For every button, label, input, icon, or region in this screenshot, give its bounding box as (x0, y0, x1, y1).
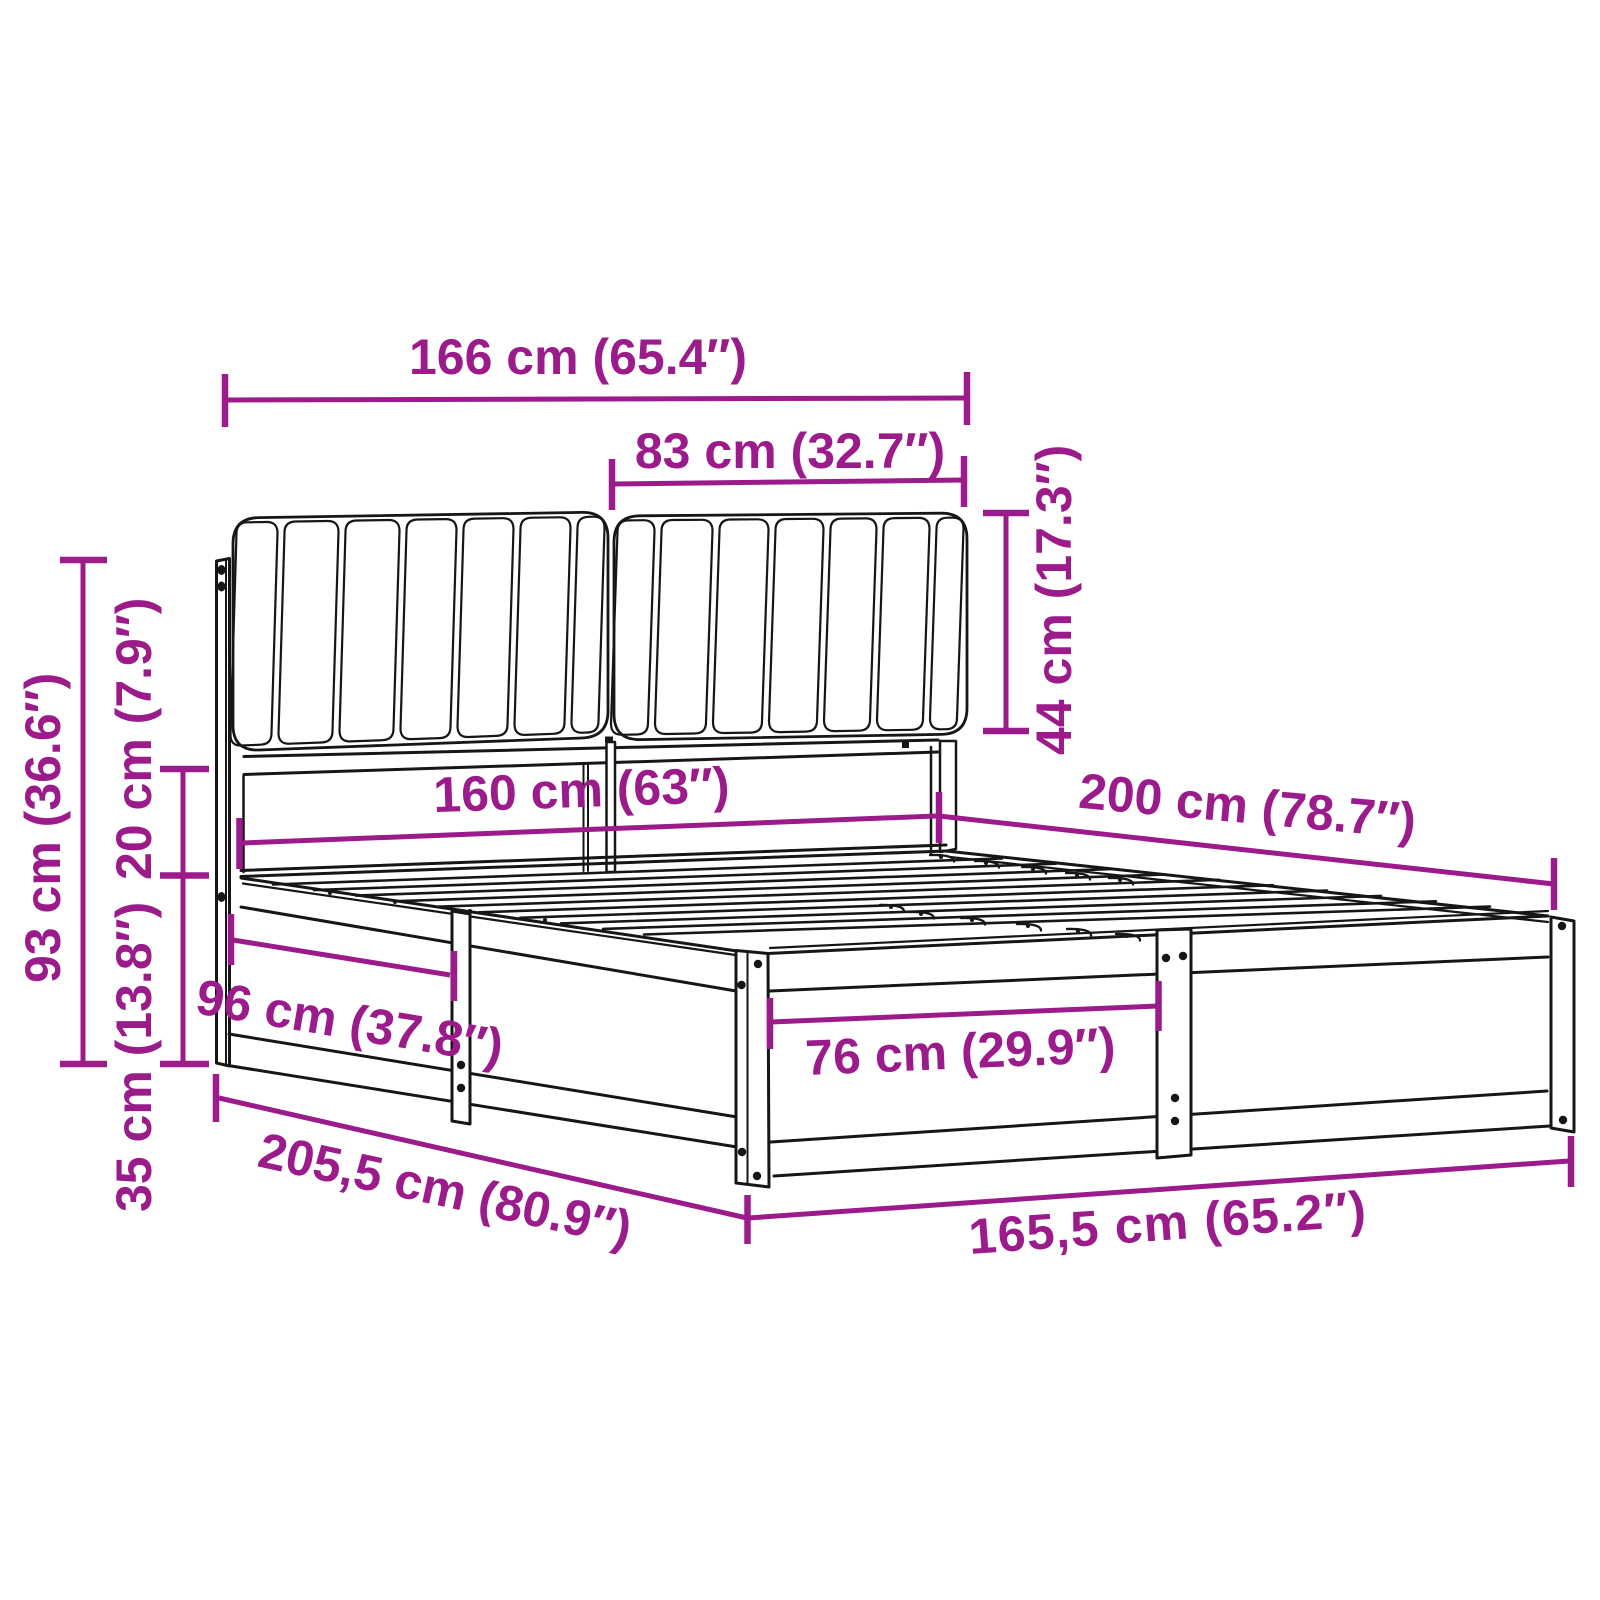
svg-text:35 cm (13.8″): 35 cm (13.8″) (106, 902, 162, 1212)
svg-text:44 cm (17.3″): 44 cm (17.3″) (1026, 445, 1082, 755)
svg-text:160 cm (63″): 160 cm (63″) (432, 757, 730, 823)
svg-text:76 cm (29.9″): 76 cm (29.9″) (804, 1017, 1116, 1086)
svg-text:165,5 cm (65.2″): 165,5 cm (65.2″) (967, 1181, 1369, 1265)
svg-text:166 cm (65.4″): 166 cm (65.4″) (409, 329, 747, 385)
svg-text:20 cm (7.9″): 20 cm (7.9″) (106, 598, 162, 880)
svg-text:83 cm (32.7″): 83 cm (32.7″) (635, 423, 945, 479)
svg-text:205,5 cm (80.9″): 205,5 cm (80.9″) (254, 1122, 637, 1257)
svg-text:93 cm (36.6″): 93 cm (36.6″) (15, 673, 71, 983)
